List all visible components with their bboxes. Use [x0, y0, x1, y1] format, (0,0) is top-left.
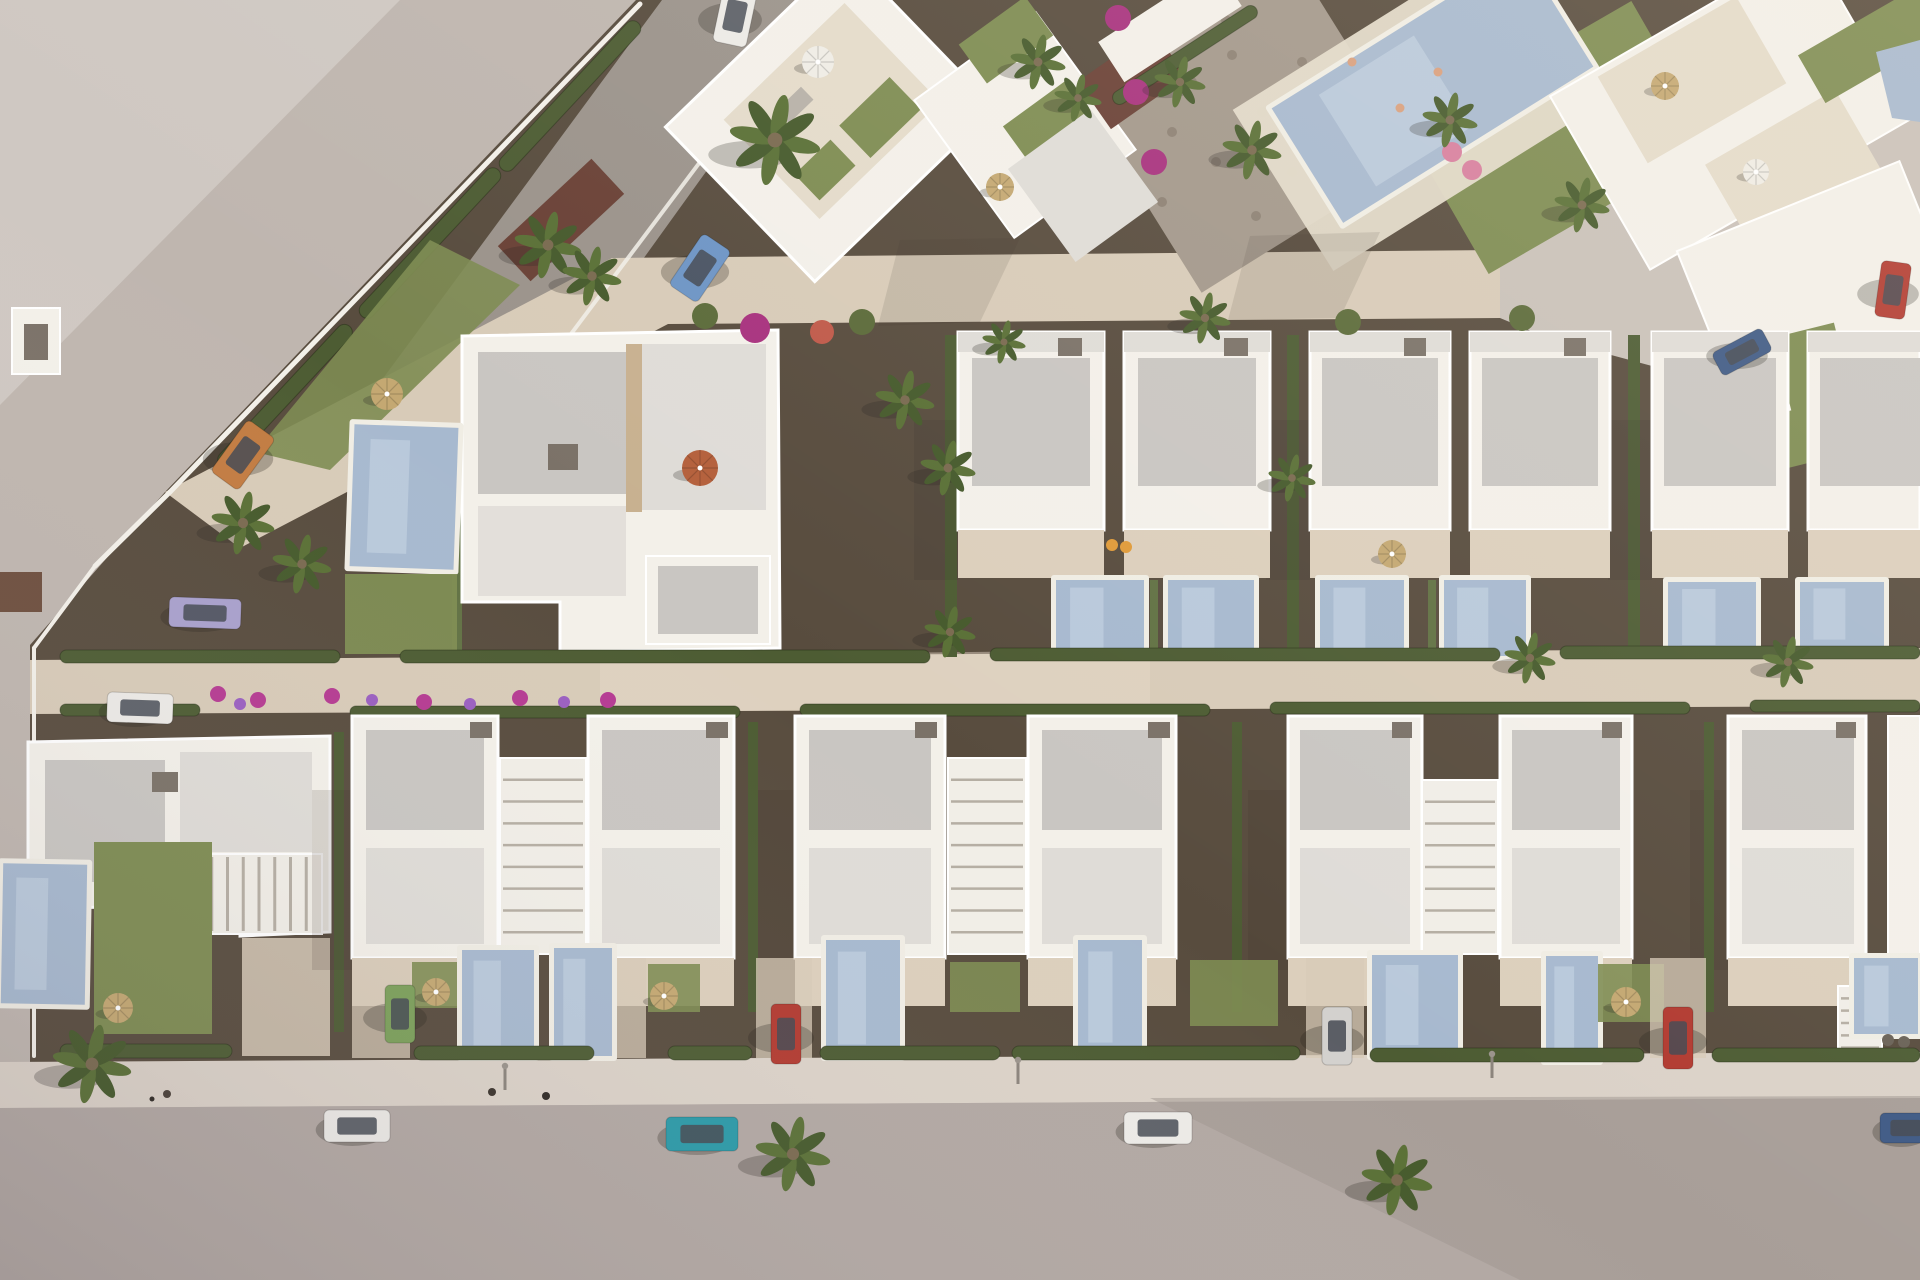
aerial-render-canvas	[0, 0, 1920, 1280]
sunlight-overlay	[0, 0, 1920, 1280]
aerial-render-scene	[0, 0, 1920, 1280]
